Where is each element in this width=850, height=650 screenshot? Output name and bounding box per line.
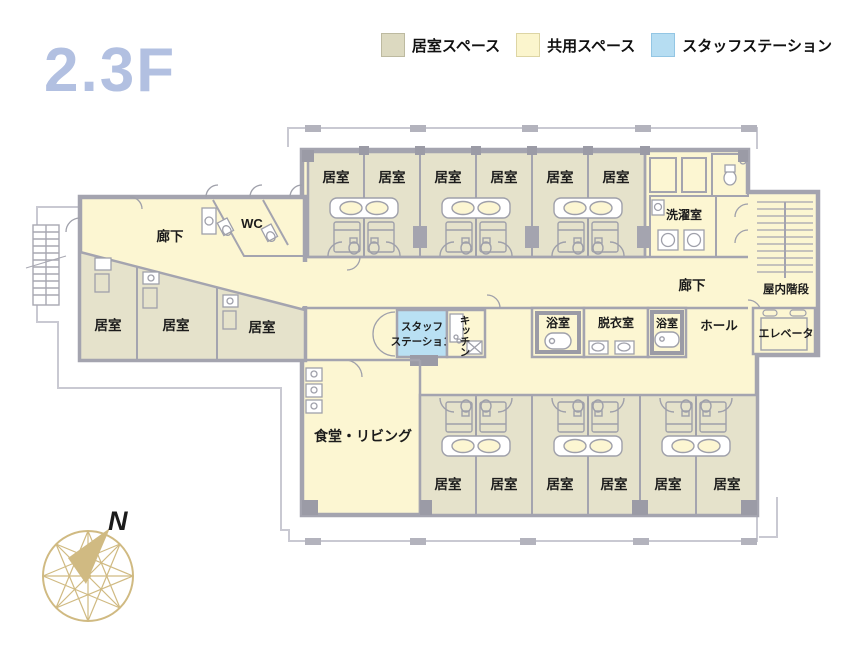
room-label: 居室: [323, 169, 350, 185]
legend-label: 居室スペース: [412, 35, 500, 56]
room-label: 居室: [435, 476, 462, 492]
room-label: 居室: [601, 476, 629, 492]
dressing-label: 脱衣室: [598, 315, 634, 330]
top-resident-row: 居室 居室 居室 居室 居室 居室: [308, 152, 651, 257]
bath-label: 浴室: [656, 316, 678, 330]
room-label: 居室: [603, 169, 631, 185]
compass-rose: N: [43, 506, 133, 621]
room-label: 居室: [491, 476, 519, 492]
kitchen-label: キッチン: [459, 315, 470, 361]
floorplan-page: 2.3F 居室スペース 共用スペース スタッフステーション: [0, 0, 850, 650]
staff-station-label-2: ステーション: [391, 336, 454, 348]
legend: 居室スペース 共用スペース スタッフステーション: [381, 33, 832, 57]
exterior-stairs: [26, 225, 66, 305]
elevator-label: エレベータ: [759, 327, 814, 340]
legend-item-common: 共用スペース: [516, 33, 635, 57]
room-label: 居室: [547, 476, 575, 492]
room-label: 居室: [714, 476, 742, 492]
resident-swatch-icon: [381, 33, 405, 57]
hall-label: ホール: [700, 319, 738, 333]
staff-swatch-icon: [651, 33, 675, 57]
laundry-label: 洗濯室: [666, 207, 702, 222]
room-label: 居室: [379, 169, 406, 185]
room-label: 居室: [163, 317, 190, 333]
legend-label: スタッフステーション: [682, 35, 832, 56]
room-label: 居室: [95, 317, 122, 333]
room-label: 居室: [655, 476, 683, 492]
staff-station-label-1: スタッフ: [401, 321, 443, 333]
bath-label: 浴室: [546, 315, 570, 330]
staff-station-room: [397, 310, 447, 357]
floor-title: 2.3F: [44, 40, 176, 102]
corridor-junction: [300, 262, 308, 306]
indoor-stairs-label: 屋内階段: [763, 282, 809, 296]
legend-item-staff: スタッフステーション: [651, 33, 832, 57]
corridor-label: 廊下: [157, 228, 184, 244]
dining-living-label: 食堂・リビング: [314, 428, 412, 444]
wc-label: WC: [241, 216, 263, 231]
legend-item-resident: 居室スペース: [381, 33, 500, 57]
corridor-label: 廊下: [679, 277, 707, 293]
compass-north-label: N: [108, 506, 128, 536]
legend-label: 共用スペース: [547, 35, 635, 56]
room-label: 居室: [249, 319, 276, 335]
room-label: 居室: [547, 169, 575, 185]
room-label: 居室: [491, 169, 519, 185]
room-label: 居室: [435, 169, 462, 185]
common-swatch-icon: [516, 33, 540, 57]
bottom-resident-row: 居室 居室 居室 居室 居室 居室: [420, 395, 757, 515]
